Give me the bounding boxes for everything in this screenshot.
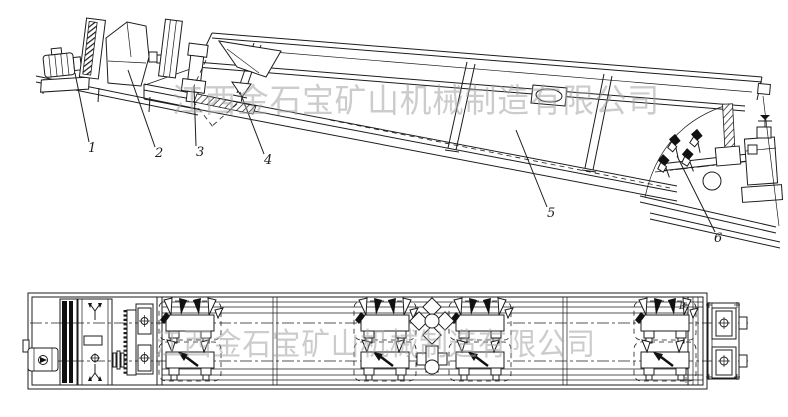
shaft-coupling bbox=[113, 351, 124, 369]
company-watermark-top: 江西金石宝矿山机械制造有限公司 bbox=[172, 81, 660, 120]
technical-drawing-sheet: 1 2 3 4 5 6 bbox=[0, 0, 788, 417]
section-label-b: B bbox=[678, 302, 686, 312]
side-elevation-view: 1 2 3 4 5 6 bbox=[36, 18, 783, 248]
gear-bearing-blocks bbox=[136, 304, 153, 374]
belt-guard bbox=[79, 18, 105, 79]
part-callout-5: 5 bbox=[547, 206, 555, 221]
tail-paddle-blade bbox=[654, 153, 675, 180]
drawing-canvas: 1 2 3 4 5 6 bbox=[0, 0, 788, 417]
tail-pulley bbox=[703, 172, 721, 190]
plan-motor bbox=[28, 348, 58, 371]
part-callout-3: 3 bbox=[196, 145, 204, 160]
part-callout-4: 4 bbox=[263, 153, 272, 168]
tail-paddle-blade bbox=[678, 147, 699, 174]
plan-drive-section bbox=[28, 299, 153, 385]
tail-paddle-blade bbox=[665, 133, 684, 159]
gearbox-housing bbox=[78, 299, 112, 385]
drive-gear bbox=[126, 310, 137, 375]
tail-bearing-assembly bbox=[742, 115, 783, 202]
part-callout-6: 6 bbox=[714, 231, 722, 246]
gear-reducer bbox=[106, 22, 163, 86]
part-callout-1: 1 bbox=[88, 141, 96, 156]
tail-paddle-blade bbox=[687, 128, 706, 154]
shaft-guard bbox=[159, 19, 183, 78]
company-watermark-bottom: 江西金石宝矿山机械制造有限公司 bbox=[154, 327, 596, 363]
part-callout-2: 2 bbox=[154, 146, 163, 161]
belt-drive bbox=[60, 299, 77, 385]
